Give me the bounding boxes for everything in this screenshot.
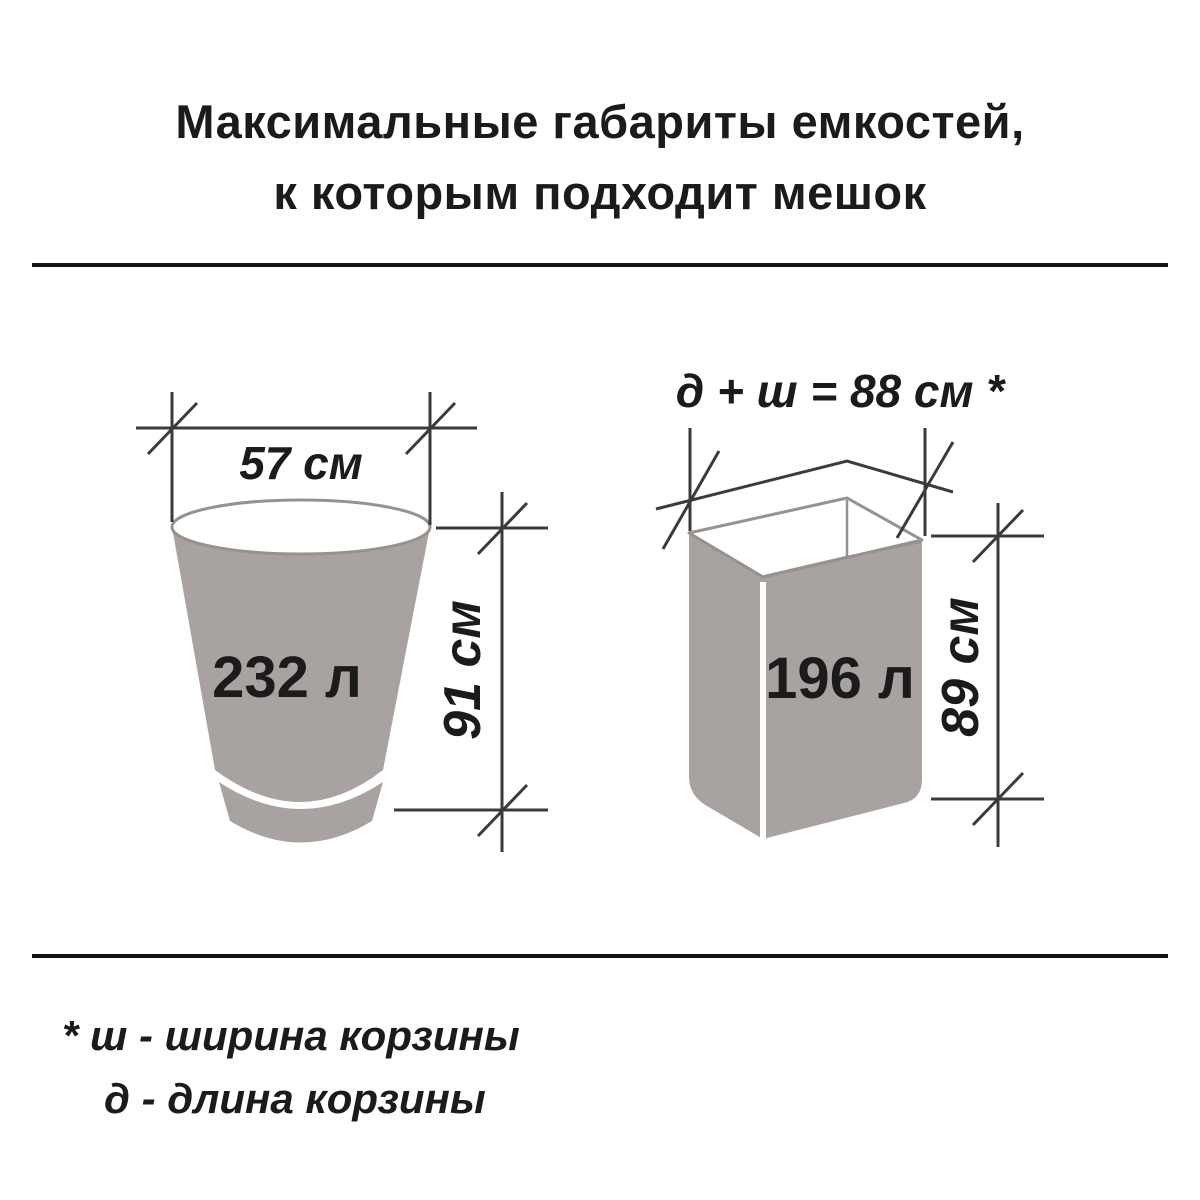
basket-height-label: 89 см	[932, 597, 990, 737]
footnote-line2: д - длина корзины	[104, 1067, 520, 1130]
page-title-line1: Максимальные габариты емкостей,	[0, 86, 1200, 157]
basket-left-face	[689, 533, 763, 839]
infographic-page: Максимальные габариты емкостей, к которы…	[0, 0, 1200, 1200]
bucket-height-label: 91 см	[434, 600, 492, 740]
basket-volume-label: 196 л	[765, 646, 915, 711]
basket-perimeter-label: д + ш = 88 см *	[676, 365, 1007, 417]
footnote: * ш - ширина корзины д - длина корзины	[62, 1004, 520, 1130]
bucket-opening	[172, 500, 430, 554]
page-title-line2: к которым подходит мешок	[0, 157, 1200, 228]
containers-diagram: 232 л 57 см 91 см	[0, 280, 1200, 940]
divider-top	[32, 263, 1168, 267]
page-title: Максимальные габариты емкостей, к которы…	[0, 86, 1200, 228]
bucket-figure: 232 л 57 см 91 см	[136, 392, 548, 852]
footnote-line1: * ш - ширина корзины	[62, 1004, 520, 1067]
bucket-volume-label: 232 л	[212, 645, 362, 710]
basket-figure: 196 л д + ш = 88 см * 89 см	[656, 365, 1044, 847]
divider-bottom	[32, 954, 1168, 958]
bucket-width-label: 57 см	[239, 437, 363, 489]
basket-height-dimension: 89 см	[931, 503, 1044, 847]
